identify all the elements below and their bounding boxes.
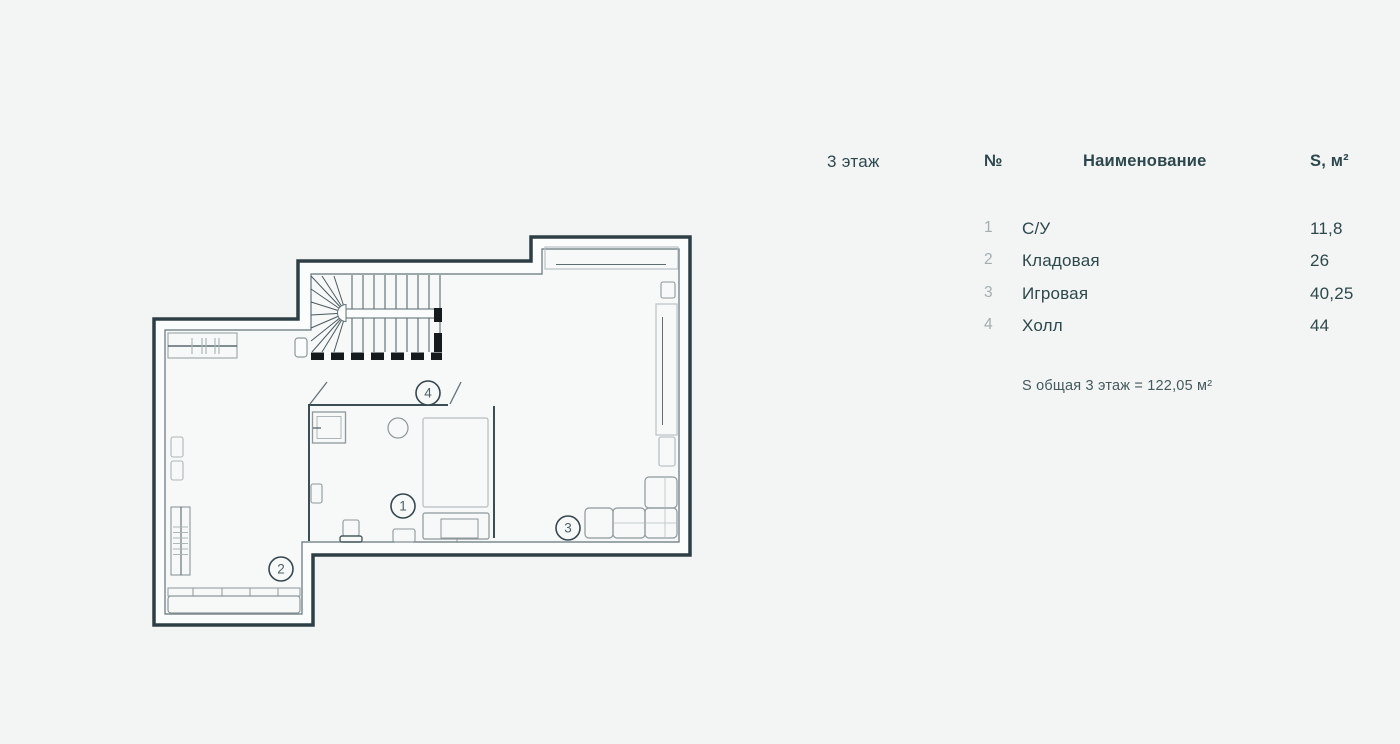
stair-door-leaf <box>295 338 307 357</box>
row-area: 40,25 <box>1310 284 1354 304</box>
row-area: 11,8 <box>1310 219 1343 239</box>
table-row: 4 Холл 44 <box>810 316 1380 348</box>
row-name: Холл <box>1022 316 1063 336</box>
room-label-1-text: 1 <box>399 499 407 514</box>
room-label-4: 4 <box>416 381 440 405</box>
total-area-label: S общая 3 этаж = 122,05 м² <box>1022 378 1212 394</box>
row-number: 4 <box>984 316 993 334</box>
column-header-area: S, м² <box>1310 152 1349 171</box>
room-label-4-text: 4 <box>424 386 432 401</box>
area-legend: 3 этаж № Наименование S, м² 1 С/У 11,8 2… <box>810 152 1380 412</box>
row-name: Кладовая <box>1022 251 1100 271</box>
column-header-name: Наименование <box>1083 152 1206 171</box>
row-area: 26 <box>1310 251 1329 271</box>
row-number: 1 <box>984 219 993 237</box>
room-label-2-text: 2 <box>277 562 285 577</box>
area-table: 1 С/У 11,8 2 Кладовая 26 3 Игровая 40,25… <box>810 219 1380 349</box>
row-area: 44 <box>1310 316 1329 336</box>
table-row: 3 Игровая 40,25 <box>810 284 1380 316</box>
stair-stringer <box>346 309 440 318</box>
room-label-3-text: 3 <box>564 521 572 536</box>
floor-label: 3 этаж <box>827 152 880 172</box>
floor-plan: 1 2 3 4 <box>150 225 700 635</box>
column-header-number: № <box>984 152 1003 171</box>
room-label-3: 3 <box>556 516 580 540</box>
page-root: { "legend": { "floor_label": "3 этаж", "… <box>0 0 1400 744</box>
room-label-2: 2 <box>269 557 293 581</box>
floor-plan-svg: 1 2 3 4 <box>150 225 700 635</box>
inner-wall-line <box>165 249 679 614</box>
row-number: 3 <box>984 284 993 302</box>
room-label-1: 1 <box>391 494 415 518</box>
table-row: 1 С/У 11,8 <box>810 219 1380 251</box>
row-name: Игровая <box>1022 284 1088 304</box>
row-number: 2 <box>984 251 993 269</box>
table-row: 2 Кладовая 26 <box>810 251 1380 283</box>
row-name: С/У <box>1022 219 1050 239</box>
